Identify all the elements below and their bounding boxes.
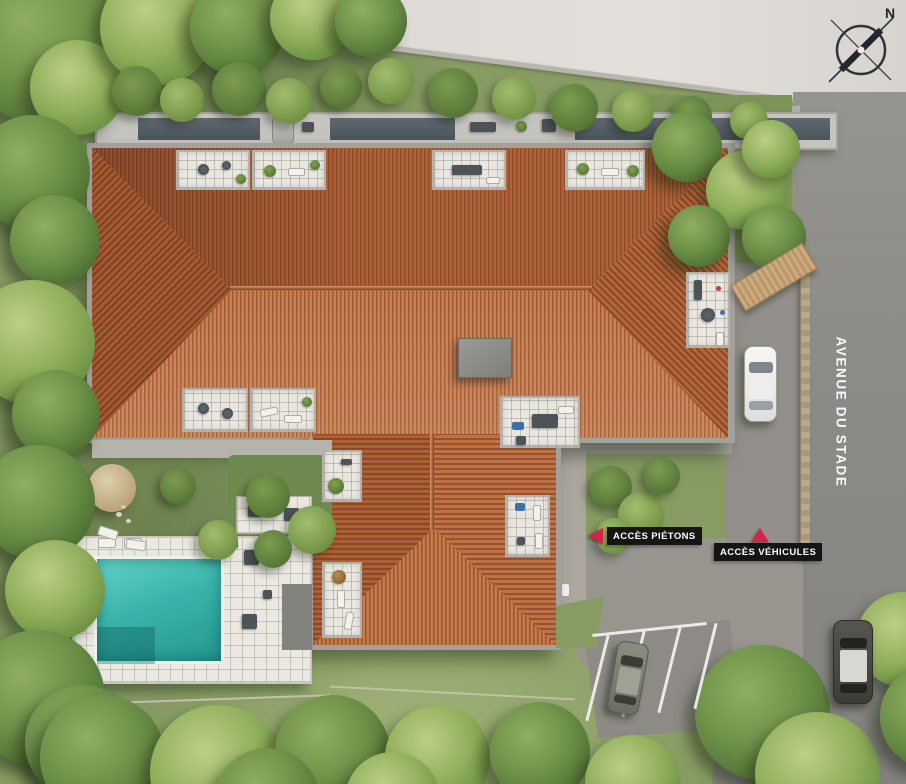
terrace-lounger: [288, 168, 305, 176]
terrace-furniture: [517, 537, 525, 545]
roof-terrace: [432, 150, 506, 190]
pool-chair: [263, 590, 272, 599]
car-windshield: [749, 362, 773, 373]
car-roof: [749, 375, 773, 399]
roof-terrace: [176, 150, 250, 190]
tree: [12, 370, 100, 458]
roof-terrace: [252, 150, 326, 190]
tree: [490, 702, 590, 784]
hedge-bush: [428, 68, 478, 118]
pool-shallow-step: [97, 627, 155, 664]
plant-icon: [577, 163, 589, 175]
plant-icon: [328, 478, 344, 494]
tree: [668, 205, 730, 267]
car-rear-window: [749, 401, 773, 410]
bush: [160, 468, 196, 504]
swimming-pool: [94, 556, 224, 664]
bush: [266, 78, 312, 124]
roof-terrace: [565, 150, 645, 190]
pool-table-set: [242, 614, 257, 629]
car-rear-window: [614, 694, 637, 706]
terrace-lounger: [343, 611, 354, 630]
stone-wall: [800, 258, 810, 558]
car-windshield: [840, 638, 867, 648]
terrace-lounger: [259, 406, 278, 418]
plant-icon: [332, 570, 346, 584]
hedge-bush: [550, 84, 598, 132]
vehicle-access-label: ACCÈS VÉHICULES: [714, 543, 822, 561]
bush: [246, 474, 290, 518]
garden-stone: [116, 512, 122, 517]
terrace-furniture: [516, 436, 526, 445]
terrace-table: [532, 414, 558, 428]
parasol: [88, 464, 136, 512]
hedge-bush: [612, 90, 654, 132]
roof-terrace: [686, 272, 730, 348]
person: [716, 286, 721, 291]
rooftop-plant: [516, 121, 527, 132]
bush: [288, 506, 336, 554]
terrace-lounger: [601, 168, 619, 176]
terrace-lounger: [694, 280, 702, 300]
terrace-table: [701, 308, 715, 322]
bush: [198, 520, 238, 560]
terrace-lounger: [284, 415, 302, 423]
roof-terrace: [250, 388, 316, 432]
terrace-lounger: [558, 406, 574, 414]
bush: [160, 78, 204, 122]
roof-ridge-wing: [430, 434, 434, 530]
bush: [320, 66, 362, 108]
pedestrian-access-arrow: [588, 528, 603, 544]
car-rear-window: [840, 684, 867, 693]
tree: [742, 120, 800, 178]
compass-north-label: N: [885, 5, 895, 21]
vehicle-access-arrow: [751, 528, 769, 542]
car-roof: [615, 666, 641, 695]
terrace-lounger: [535, 533, 543, 549]
rooftop-equipment: [470, 122, 496, 132]
pedestrian-access-label: ACCÈS PIÉTONS: [607, 527, 702, 545]
terrace-chair: [512, 422, 524, 430]
site-plan: ACCÈS PIÉTONS ACCÈS VÉHICULES AVENUE DU …: [0, 0, 906, 784]
bush: [254, 530, 292, 568]
plant-icon: [627, 165, 639, 177]
disabled-parking-marking: [562, 584, 569, 596]
tree: [585, 735, 680, 784]
plant-icon: [236, 174, 246, 184]
tree: [5, 540, 105, 640]
garden-stone: [121, 505, 126, 509]
rooftop-equipment: [302, 122, 314, 132]
terrace-lounger: [337, 590, 345, 608]
bush: [644, 458, 680, 494]
roof-terrace: [182, 388, 248, 432]
hedge-bush: [368, 58, 414, 104]
plant-icon: [302, 397, 312, 407]
terrace-lounger: [716, 332, 724, 346]
attic-strip: [138, 118, 260, 140]
garden-stone: [126, 519, 131, 523]
street-name: AVENUE DU STADE: [834, 336, 849, 487]
terrace-table: [198, 164, 209, 175]
plant-icon: [264, 165, 276, 177]
hedge-bush: [492, 76, 536, 120]
roof-terrace: [322, 450, 362, 502]
terrace-lounger: [533, 505, 541, 521]
roof-access-box: [458, 338, 512, 378]
attic-strip: [330, 118, 455, 140]
roof-terrace: [505, 495, 550, 557]
dark-patio: [282, 584, 312, 650]
bush: [112, 66, 162, 116]
roof-ridge-main: [230, 286, 592, 290]
tree: [10, 195, 100, 285]
plant-icon: [310, 160, 320, 170]
car-roof: [840, 650, 867, 682]
terrace-table: [452, 165, 482, 175]
terrace-chair: [515, 503, 525, 511]
bush: [212, 62, 266, 116]
parked-car-white: [744, 346, 777, 422]
driving-car-dark: [833, 620, 873, 704]
compass-icon: N: [815, 2, 906, 94]
terrace-furniture: [341, 459, 352, 465]
terrace-table: [222, 161, 231, 170]
person: [720, 310, 725, 315]
terrace-lounger: [486, 177, 500, 184]
terrace-table: [198, 403, 209, 414]
roof-terrace: [500, 396, 580, 448]
terrace-table: [222, 408, 233, 419]
roof-terrace: [322, 562, 362, 638]
fence-line: [330, 686, 575, 701]
